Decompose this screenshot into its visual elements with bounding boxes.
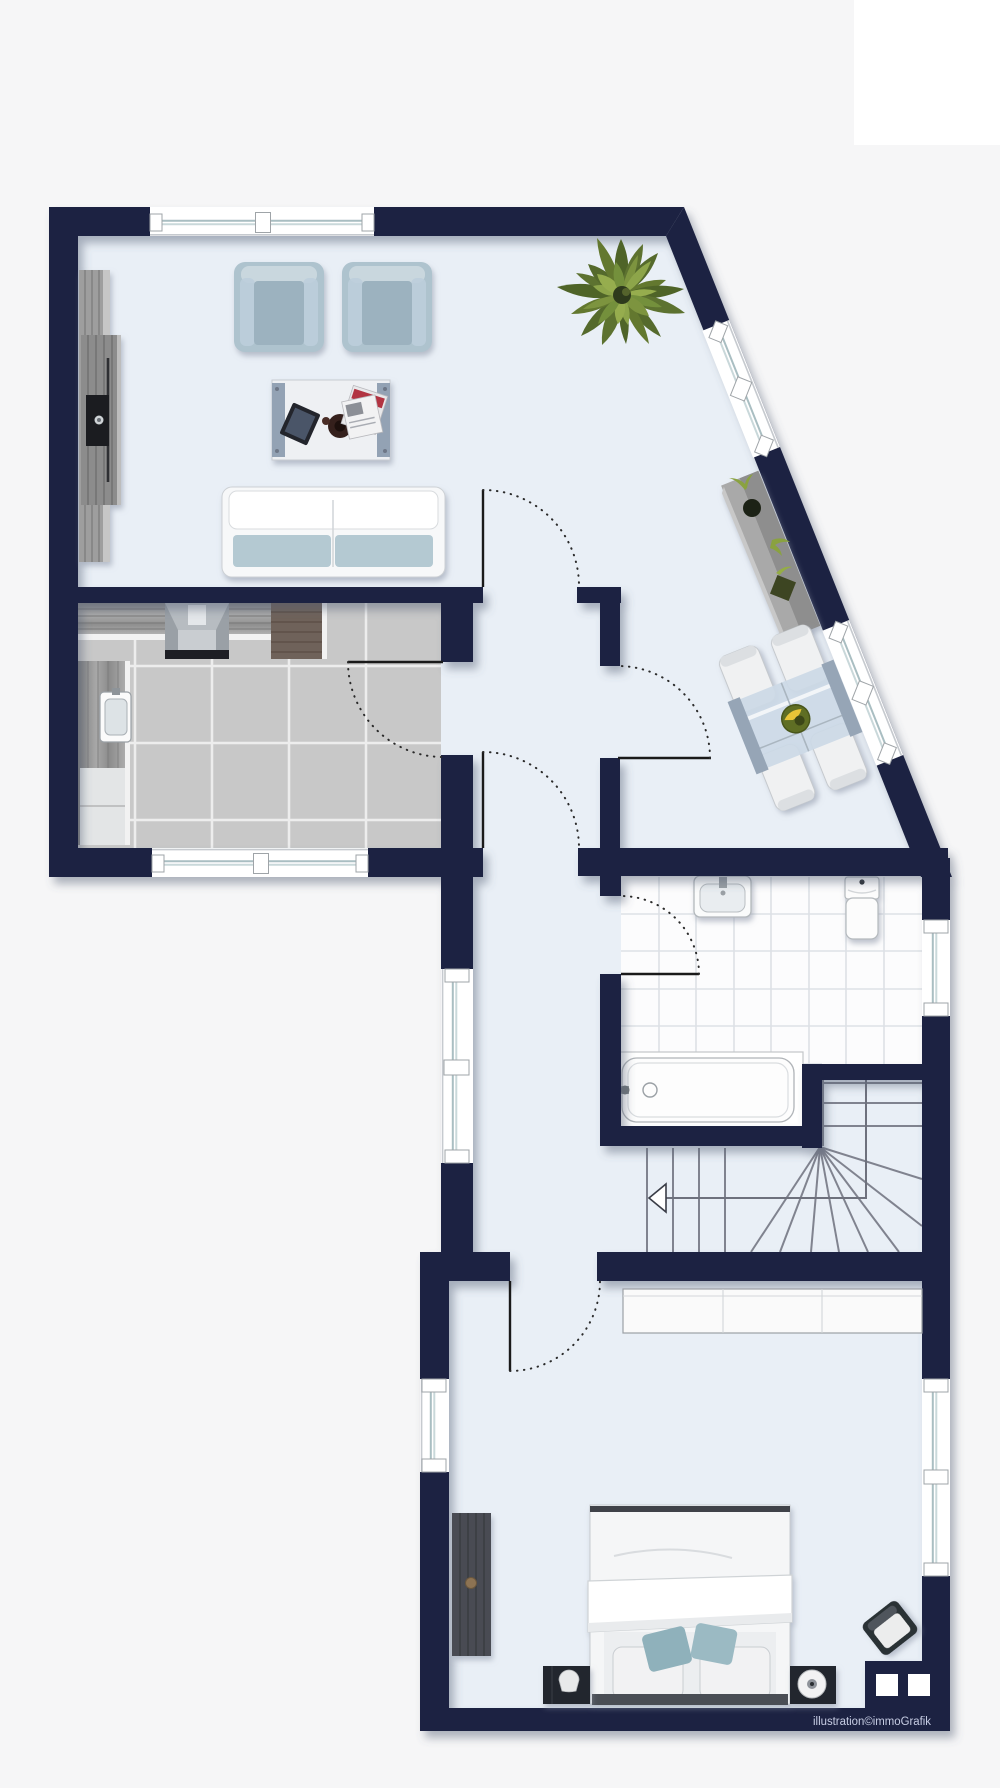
svg-text:illustration©immoGrafik: illustration©immoGrafik bbox=[813, 1716, 931, 1728]
